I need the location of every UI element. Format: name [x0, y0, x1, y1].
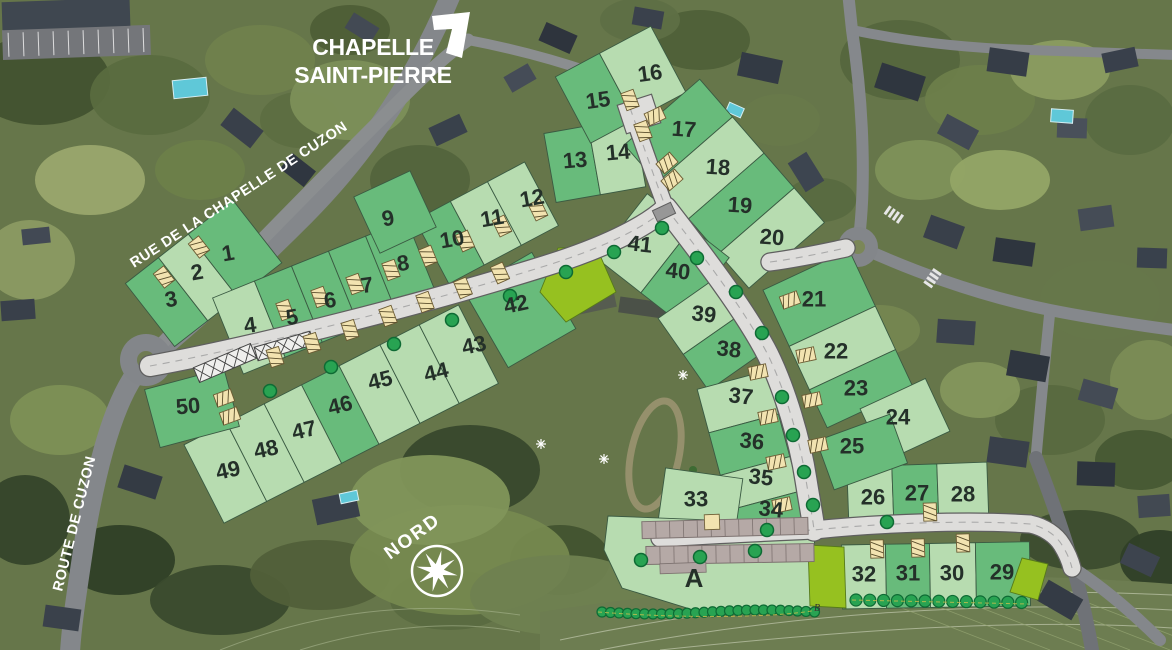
house-roof: [1137, 248, 1168, 269]
tree-icon: [694, 551, 707, 564]
tree-icon: [264, 385, 277, 398]
lot-number-35: 35: [748, 463, 775, 490]
lot-number-37: 37: [728, 382, 755, 409]
lot-number-12: 12: [518, 184, 546, 213]
hedge-tree-icon: [1016, 596, 1028, 608]
lot-number-13: 13: [562, 146, 589, 173]
driveway-marker-icon: [923, 503, 937, 521]
tree-icon: [756, 327, 769, 340]
hedge-tree-icon: [905, 595, 917, 607]
tree-icon: [656, 222, 669, 235]
tree-icon: [761, 524, 774, 537]
lot-number-30: 30: [940, 561, 964, 586]
lot-number-38: 38: [716, 335, 743, 362]
tree-icon: [635, 554, 648, 567]
swimming-pool: [1051, 109, 1074, 124]
lot-number-19: 19: [727, 192, 753, 219]
lot-number-31: 31: [896, 561, 920, 586]
tree-icon: [776, 391, 789, 404]
chapel-label-line1: CHAPELLE: [312, 34, 434, 60]
swimming-pool: [172, 77, 208, 98]
tree-icon: [798, 466, 811, 479]
driveway-marker-icon: [870, 540, 884, 558]
hedge-tree-icon: [988, 596, 1000, 608]
lot-number-32: 32: [852, 562, 876, 587]
lot-number-20: 20: [759, 224, 785, 251]
tree-icon: [388, 338, 401, 351]
lot-number-33: 33: [684, 487, 708, 512]
tree-icon: [730, 286, 743, 299]
minor-label: B: [814, 603, 820, 614]
house-roof: [0, 299, 35, 321]
hedge-tree-icon: [1002, 596, 1014, 608]
hedge-tree-icon: [919, 595, 931, 607]
lot-number-25: 25: [840, 434, 864, 459]
lot-number-42: 42: [501, 289, 530, 319]
house-roof: [936, 319, 976, 346]
building-row: [642, 517, 808, 538]
lot-number-49: 49: [213, 455, 242, 485]
lot-number-50: 50: [175, 392, 202, 419]
driveway-marker-icon: [956, 534, 970, 552]
lot-number-26: 26: [861, 485, 885, 510]
tree-icon: [325, 361, 338, 374]
lot-number-10: 10: [438, 225, 466, 254]
lot-number-43: 43: [459, 330, 488, 360]
tree-icon: [446, 314, 459, 327]
lot-number-22: 22: [824, 339, 848, 364]
tree-icon: [608, 246, 621, 259]
lot-number-40: 40: [665, 257, 692, 284]
hedge-tree-icon: [933, 595, 945, 607]
tree-icon: [691, 252, 704, 265]
lot-number-21: 21: [802, 287, 826, 312]
tree-icon: [560, 266, 573, 279]
lot-number-17: 17: [671, 116, 697, 143]
lot-number-34: 34: [758, 495, 786, 523]
chapel-label-line2: SAINT-PIERRE: [294, 62, 451, 88]
lot-number-14: 14: [605, 138, 632, 165]
lot-number-24: 24: [886, 405, 911, 430]
hedge-tree-icon: [974, 596, 986, 608]
hedge-tree-icon: [960, 596, 972, 608]
building-row: [646, 544, 814, 565]
site-plan-map: 1234567891011121314151617181920212223242…: [0, 0, 1172, 650]
lot-number-29: 29: [990, 560, 1014, 585]
lot-number-A: A: [685, 563, 704, 593]
house-roof: [1077, 461, 1116, 486]
tree-icon: [787, 429, 800, 442]
lot-number-39: 39: [691, 300, 718, 327]
lot-number-41: 41: [627, 230, 654, 257]
lot-number-48: 48: [251, 434, 280, 464]
lot-number-18: 18: [705, 154, 731, 181]
house-roof: [986, 436, 1029, 467]
lot-number-16: 16: [636, 59, 664, 87]
lot-number-15: 15: [584, 86, 612, 114]
tree-icon: [749, 545, 762, 558]
site-plan-screenshot: 1234567891011121314151617181920212223242…: [0, 0, 1172, 650]
lot-number-27: 27: [905, 481, 929, 506]
house-roof: [21, 227, 51, 246]
lot-number-23: 23: [844, 376, 868, 401]
house-roof: [1137, 494, 1170, 518]
driveway-marker-icon: [911, 539, 925, 557]
lot-number-11: 11: [478, 204, 505, 233]
tree-icon: [881, 516, 894, 529]
tree-icon: [807, 499, 820, 512]
lot-number-36: 36: [739, 427, 766, 454]
lot-number-28: 28: [951, 482, 975, 507]
hedge-tree-icon: [947, 595, 959, 607]
